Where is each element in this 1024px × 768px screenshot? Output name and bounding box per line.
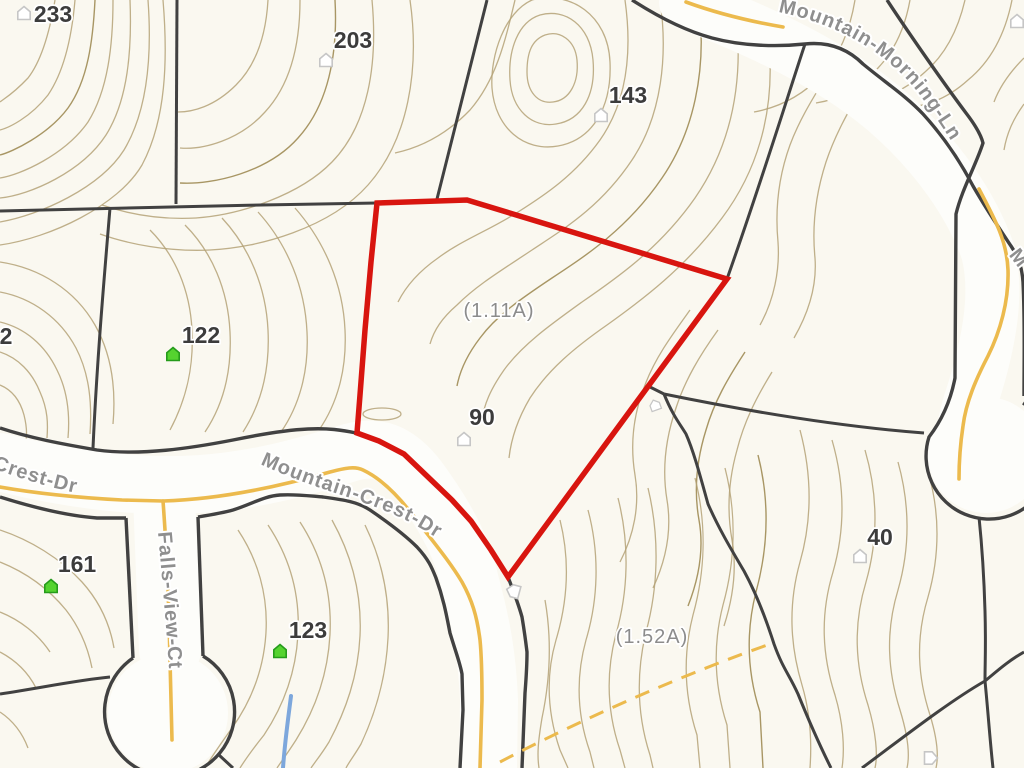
parcel-boundary-line [0, 677, 110, 694]
house-icon [595, 109, 607, 122]
parcel-boundary-line [0, 203, 377, 211]
house-icon [854, 550, 866, 563]
contour-line [527, 34, 577, 102]
contour-line [510, 13, 594, 124]
contour-line [579, 510, 596, 768]
contour-line [688, 352, 745, 606]
house-icon [167, 348, 179, 361]
parcel-number-label: 122 [182, 322, 220, 348]
contour-line [180, 0, 300, 148]
house-icon [320, 54, 332, 67]
road-fill-layer [0, 2, 1024, 768]
contour-line [180, 0, 336, 183]
parcel-number-label: 90 [469, 404, 495, 430]
parcel-number-label: 161 [58, 551, 97, 577]
parcel-number-label: 233 [34, 1, 72, 27]
stream-line [283, 696, 291, 768]
parcel-number-label: 203 [334, 27, 372, 53]
easement-dashed-line [500, 643, 773, 762]
contour-line [716, 468, 733, 768]
house-icon [458, 433, 470, 446]
contour-line [0, 0, 149, 222]
contour-line [0, 652, 36, 688]
contour-line [0, 712, 28, 748]
house-icon [18, 7, 30, 20]
road-edge-line [126, 518, 133, 658]
contour-line [794, 88, 862, 338]
contour-line [538, 600, 549, 768]
contour-line [686, 478, 703, 768]
house-icon [45, 580, 57, 593]
contour-line [549, 520, 568, 768]
parcel-boundary-line [219, 755, 233, 768]
house-icon [649, 398, 662, 411]
contour-line [363, 408, 401, 420]
contour-line [994, 58, 1024, 102]
contour-line [295, 208, 345, 430]
contour-line [0, 0, 130, 198]
parcel-boundary-line [664, 394, 924, 433]
parcel-number-label: 2 [0, 323, 12, 349]
parcel-boundary-line [979, 517, 993, 768]
parcel-number-label: 123 [289, 617, 327, 643]
contour-line [178, 0, 268, 112]
contour-line [346, 525, 388, 768]
parcel-boundary-line [727, 44, 805, 279]
contour-line [240, 525, 298, 768]
contour-line [0, 292, 91, 434]
parcel-map-canvas[interactable]: Mountain-Morning-Ln Mountain-Crest-Dr Cr… [0, 0, 1024, 768]
culdesac-fill [108, 653, 228, 768]
house-icon [505, 583, 521, 598]
acreage-label: (1.11A) [463, 300, 534, 322]
parcel-boundary-line [437, 0, 487, 199]
parcel-boundary-line [862, 652, 1024, 768]
contour-line [0, 352, 47, 438]
contour-line [857, 450, 876, 768]
contour-line [1004, 104, 1024, 150]
acreage-label: (1.52A) [616, 626, 689, 648]
contour-line [890, 462, 909, 768]
contour-line [0, 612, 50, 652]
contour-line [824, 440, 843, 768]
parcel-number-label: 143 [609, 82, 647, 108]
contour-line [258, 212, 307, 432]
road-fill [686, 2, 992, 472]
map-viewport[interactable]: Mountain-Morning-Ln Mountain-Crest-Dr Cr… [0, 0, 1024, 768]
parcel-boundary-line [93, 208, 110, 448]
house-icon [925, 752, 938, 764]
house-icon [1011, 15, 1023, 28]
parcel-boundary-line [664, 394, 831, 768]
parcel-boundary-line [176, 0, 177, 204]
house-icon [274, 645, 286, 658]
parcel-number-label: 40 [867, 524, 893, 550]
